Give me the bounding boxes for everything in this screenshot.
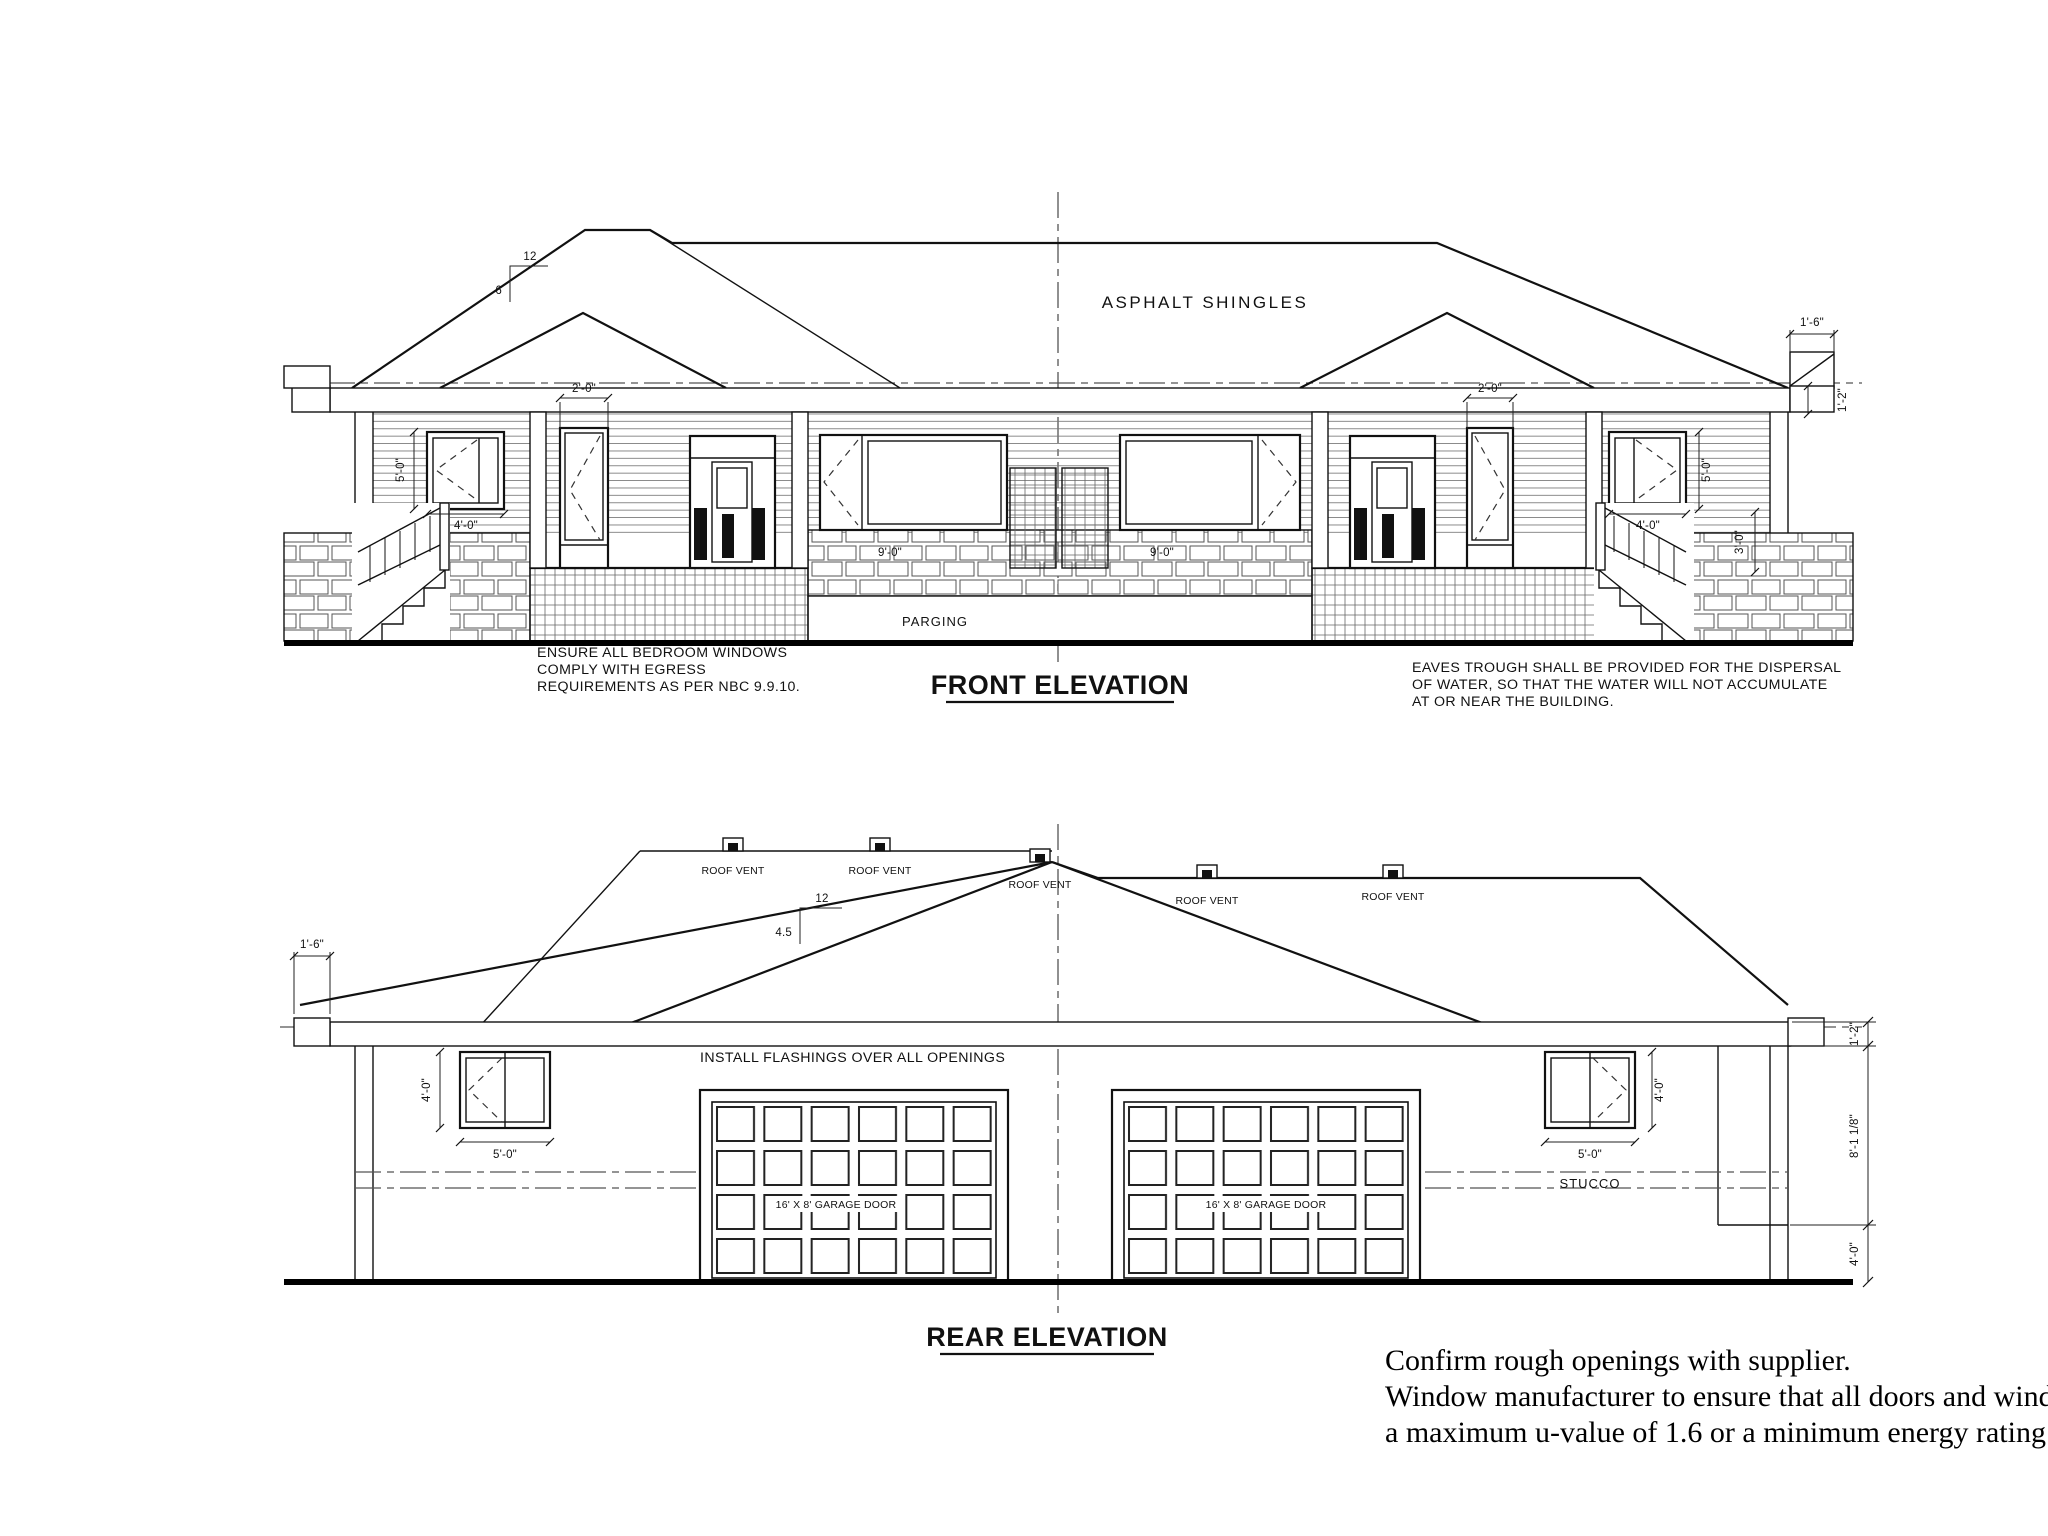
dim-stone-right: 9'-0" bbox=[1150, 547, 1174, 559]
dim-rear-overhang: 1'-6" bbox=[300, 939, 324, 951]
supplier-note-line-3: a maximum u-value of 1.6 or a minimum en… bbox=[1385, 1416, 2048, 1449]
front-stairs-left bbox=[352, 503, 450, 641]
rear-garage-door-right: 16' X 8' GARAGE DOOR bbox=[1112, 1090, 1420, 1282]
dim-rear-wall-height: 8'-1 1/8" bbox=[1849, 1114, 1861, 1158]
front-patio-window-right bbox=[1120, 435, 1300, 530]
supplier-note-line-1: Confirm rough openings with supplier. bbox=[1385, 1344, 1851, 1377]
rear-elevation-title: REAR ELEVATION bbox=[926, 1322, 1168, 1352]
front-fascia bbox=[284, 352, 1834, 412]
front-roof bbox=[352, 230, 1788, 388]
dim-corner-window-width-right: 4'-0" bbox=[1636, 520, 1660, 532]
roof-vent-label-4: ROOF VENT bbox=[1175, 895, 1238, 907]
front-eaves-note: EAVES TROUGH SHALL BE PROVIDED FOR THE D… bbox=[1412, 660, 1841, 710]
dim-front-fascia: 1'-2" bbox=[1837, 388, 1849, 412]
front-center-rail-right bbox=[1062, 468, 1108, 568]
front-slope-rise-label: 6 bbox=[495, 285, 502, 297]
rear-stucco-label: STUCCO bbox=[1560, 1176, 1621, 1191]
front-egress-note: ENSURE ALL BEDROOM WINDOWS COMPLY WITH E… bbox=[537, 645, 800, 695]
dim-rear-window-height-left: 4'-0" bbox=[421, 1078, 433, 1102]
dim-rear-fascia: 1'-2" bbox=[1849, 1022, 1861, 1046]
dim-stone-left: 9'-0" bbox=[878, 547, 902, 559]
roof-vent-label-3: ROOF VENT bbox=[1008, 879, 1071, 891]
rear-window-left bbox=[460, 1052, 550, 1128]
roof-vent-label-1: ROOF VENT bbox=[701, 865, 764, 877]
roof-vent-4: ROOF VENT bbox=[1175, 865, 1238, 907]
front-porch-window-left bbox=[560, 428, 608, 568]
eaves-note-line-3: AT OR NEAR THE BUILDING. bbox=[1412, 694, 1614, 710]
egress-note-line-2: COMPLY WITH EGRESS bbox=[537, 662, 706, 678]
front-center-rail-left bbox=[1010, 468, 1056, 568]
dim-rear-window-width-left: 5'-0" bbox=[493, 1149, 517, 1161]
rear-flashing-note: INSTALL FLASHINGS OVER ALL OPENINGS bbox=[700, 1050, 1005, 1066]
front-elevation: 12 6 2'-0" 2'-0" 4'-0" 5'-0" 4'-0" bbox=[284, 192, 1862, 710]
front-corner-window-right bbox=[1609, 432, 1686, 509]
eaves-note-line-2: OF WATER, SO THAT THE WATER WILL NOT ACC… bbox=[1412, 677, 1828, 693]
roof-vent-label-2: ROOF VENT bbox=[848, 865, 911, 877]
dim-rear-window-width-right: 5'-0" bbox=[1578, 1149, 1602, 1161]
rear-slope-run-label: 12 bbox=[815, 893, 828, 905]
front-patio-window-left bbox=[820, 435, 1007, 530]
supplier-note-line-2: Window manufacturer to ensure that all d… bbox=[1385, 1380, 2048, 1413]
drawing-sheet: 12 6 2'-0" 2'-0" 4'-0" 5'-0" 4'-0" bbox=[0, 0, 2048, 1536]
dim-porch-window-right: 2'-0" bbox=[1478, 383, 1502, 395]
roof-vent-3: ROOF VENT bbox=[1008, 849, 1071, 891]
dim-rear-window-height-right: 4'-0" bbox=[1654, 1078, 1666, 1102]
front-slope-run-label: 12 bbox=[523, 251, 536, 263]
garage-door-left-label: 16' X 8' GARAGE DOOR bbox=[776, 1199, 897, 1211]
front-stone-center bbox=[808, 530, 1312, 596]
dim-corner-window-height-right: 5'-0" bbox=[1701, 458, 1713, 482]
dim-front-rail-height: 3'-0" bbox=[1734, 530, 1746, 554]
front-porch-skirt-right bbox=[1312, 568, 1602, 641]
front-porch-window-right bbox=[1467, 428, 1513, 568]
egress-note-line-3: REQUIREMENTS AS PER NBC 9.9.10. bbox=[537, 679, 800, 695]
garage-door-right-label: 16' X 8' GARAGE DOOR bbox=[1206, 1199, 1327, 1211]
dim-front-overhang: 1'-6" bbox=[1800, 317, 1824, 329]
front-corner-window-left bbox=[427, 432, 504, 509]
elevation-drawing: 12 6 2'-0" 2'-0" 4'-0" 5'-0" 4'-0" bbox=[0, 0, 2048, 1536]
rear-slope-rise-label: 4.5 bbox=[775, 927, 792, 939]
rear-roof-vents: ROOF VENT ROOF VENT ROOF VENT ROOF VENT … bbox=[701, 838, 1424, 907]
rear-elevation: ROOF VENT ROOF VENT ROOF VENT ROOF VENT … bbox=[280, 824, 1876, 1354]
rear-fascia bbox=[294, 1018, 1824, 1046]
supplier-note: Confirm rough openings with supplier. Wi… bbox=[1385, 1344, 2048, 1449]
front-roof-slope-marker: 12 6 bbox=[495, 251, 548, 302]
roof-vent-1: ROOF VENT bbox=[701, 838, 764, 877]
eaves-note-line-1: EAVES TROUGH SHALL BE PROVIDED FOR THE D… bbox=[1412, 660, 1841, 676]
rear-window-right bbox=[1545, 1052, 1635, 1128]
rear-roof-slope-marker: 12 4.5 bbox=[775, 893, 842, 944]
dim-corner-window-width-left: 4'-0" bbox=[454, 520, 478, 532]
egress-note-line-1: ENSURE ALL BEDROOM WINDOWS bbox=[537, 645, 787, 661]
front-roof-material-label: ASPHALT SHINGLES bbox=[1102, 293, 1309, 312]
dim-corner-window-height-left: 5'-0" bbox=[395, 458, 407, 482]
roof-vent-5: ROOF VENT bbox=[1361, 865, 1424, 903]
rear-garage-door-left: 16' X 8' GARAGE DOOR bbox=[700, 1090, 1008, 1282]
front-porch-skirt-left bbox=[530, 568, 808, 641]
front-entry-door-left bbox=[690, 436, 775, 568]
roof-vent-2: ROOF VENT bbox=[848, 838, 911, 877]
dim-rear-foundation: 4'-0" bbox=[1849, 1242, 1861, 1266]
front-entry-door-right bbox=[1350, 436, 1435, 568]
front-parging-band bbox=[808, 596, 1312, 641]
rear-roof bbox=[300, 851, 1788, 1028]
front-parging-label: PARGING bbox=[902, 614, 968, 629]
front-elevation-title: FRONT ELEVATION bbox=[931, 670, 1190, 700]
roof-vent-label-5: ROOF VENT bbox=[1361, 891, 1424, 903]
dim-porch-window-left: 2'-0" bbox=[572, 383, 596, 395]
